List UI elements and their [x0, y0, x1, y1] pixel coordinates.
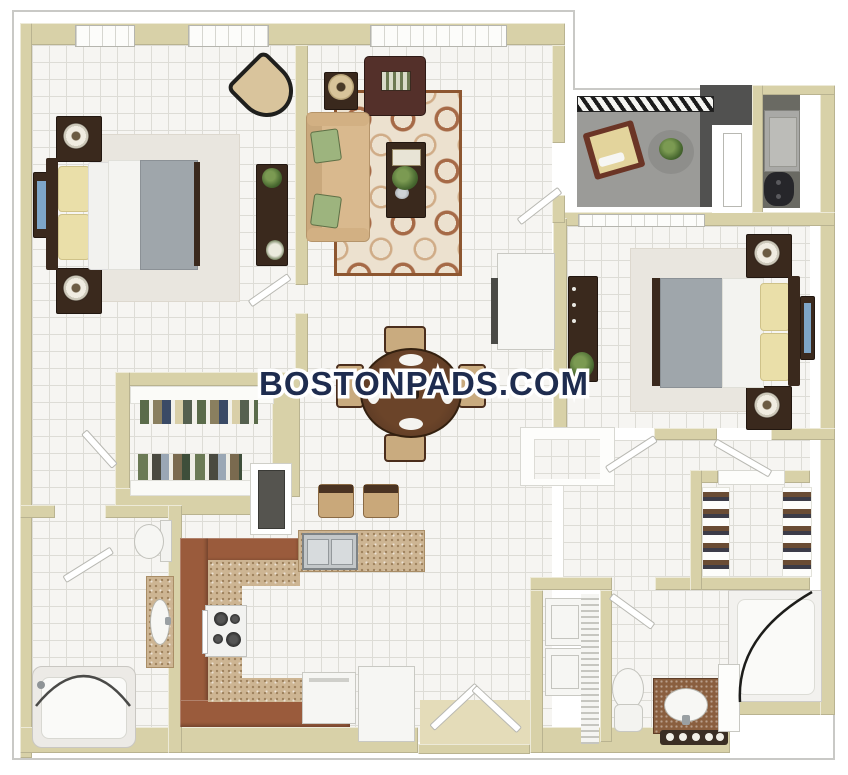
wall-shoecloset-left: [690, 470, 702, 590]
laundry-dryer: [545, 648, 583, 696]
bedroom2-pillow-1: [760, 283, 790, 331]
laundry-wire-shelves: [581, 594, 599, 744]
dresser-knob-1: [572, 287, 576, 291]
bath2-vanity: [653, 678, 719, 734]
bedroom2-window: [578, 214, 705, 227]
plate-e: [441, 383, 454, 404]
utility-dark-appliance: [764, 172, 794, 206]
wall-bedroom2-left: [553, 218, 567, 430]
bedroom1-pillow-1: [58, 166, 90, 212]
wall-right: [820, 88, 835, 715]
bedroom1-flowers: [266, 240, 284, 260]
bath2-faucet: [682, 715, 690, 725]
bedroom2-lamp-n: [752, 238, 782, 268]
bar-stool-2: [363, 484, 399, 518]
balcony-railing: [577, 96, 714, 112]
bedroom2-tv: [800, 296, 815, 360]
bath1-shower-head: [37, 681, 45, 689]
living-armchair: [364, 56, 426, 116]
sink-basin-right: [331, 539, 353, 565]
wall-bath1-top-b: [105, 505, 170, 518]
bath1-faucet: [165, 617, 171, 625]
kitchen-dishwasher: [302, 672, 356, 724]
washer-lid: [769, 117, 797, 167]
shoe-shelf-right: [782, 487, 812, 577]
bedroom2-plant: [570, 352, 594, 378]
plate-w: [367, 383, 380, 404]
utility-washer: [764, 110, 800, 172]
dining-chair-s: [384, 434, 426, 462]
sofa-arm-n: [307, 113, 369, 126]
wall-shoecloset-top-b: [783, 470, 810, 483]
bedroom1-pillow-2: [58, 214, 90, 260]
balcony-wall-right: [700, 125, 712, 207]
wall-bath1-top-a: [20, 505, 55, 518]
wall-hall-b: [654, 428, 717, 440]
bedroom2-pillow-2: [760, 333, 790, 381]
wall-bedroom1-right-b: [295, 313, 308, 372]
dining-console-edge: [491, 278, 498, 344]
bedroom2-sheet: [722, 278, 764, 388]
bath1-toilet-bowl: [134, 524, 164, 559]
wall-left: [20, 23, 32, 758]
balcony-side-door: [723, 133, 742, 207]
candle-4: [705, 733, 713, 741]
burner-3: [213, 634, 223, 644]
sofa-pillow-1: [310, 128, 342, 164]
burner-4: [226, 632, 241, 647]
bedroom1-lamp-n: [60, 120, 92, 152]
wall-bath2-top-b: [655, 577, 810, 590]
living-lamp: [328, 74, 354, 100]
sink-basin-left: [307, 539, 329, 565]
candle-5: [716, 733, 724, 741]
wall-bath2-top-a: [530, 577, 612, 590]
closet-door-frame: [250, 463, 292, 535]
plate-s: [399, 418, 423, 430]
wall-bottom-right: [728, 700, 835, 715]
coffee-table-plant: [392, 166, 418, 190]
hall-closet-floor: [534, 439, 600, 479]
bedroom1-lamp-s: [60, 272, 92, 304]
coffee-table-tray: [392, 149, 421, 166]
laundry-washer-door: [551, 605, 579, 639]
laundry-dryer-door: [551, 655, 579, 689]
closet-clothes-row-1: [140, 400, 258, 424]
dining-console: [497, 253, 555, 350]
bath2-frame: [718, 664, 740, 732]
burner-2: [230, 614, 240, 624]
dining-table: [360, 348, 462, 438]
laundry-washer: [545, 598, 583, 646]
burner-1: [214, 612, 228, 626]
bedroom2-footboard: [652, 278, 660, 386]
sofa-arm-s: [307, 228, 369, 241]
wall-bath2-left: [600, 590, 612, 742]
shoecloset-door-opening: [718, 470, 785, 485]
bedroom1-plant: [262, 168, 282, 188]
kitchen-fridge: [358, 666, 415, 742]
bedroom1-sheet: [108, 160, 144, 270]
candle-1: [666, 733, 674, 741]
wall-utility-top: [752, 85, 835, 95]
bath2-toilet-seat: [614, 704, 643, 732]
dresser-knob-3: [572, 319, 576, 323]
candle-3: [692, 733, 700, 741]
bath2-candle-tray: [660, 730, 728, 745]
bar-stool-1: [318, 484, 354, 518]
appliance-dot-1: [776, 180, 781, 185]
bar-stool-2-back: [364, 485, 398, 493]
bedroom2-tv-screen: [804, 303, 811, 353]
appliance-dot-2: [776, 194, 781, 199]
living-window: [370, 25, 507, 47]
dishwasher-handle: [309, 678, 349, 682]
closet-dark-door: [258, 470, 285, 529]
living-sofa: [306, 112, 370, 242]
bedroom1-window-2: [188, 25, 269, 47]
stove-handle: [202, 610, 208, 654]
bedroom1-footboard: [194, 162, 200, 266]
armchair-pillow: [381, 71, 411, 91]
floorplan-canvas: BOSTONPADS.COM BOSTONPADS.COM: [0, 0, 848, 775]
hall-closet: [520, 427, 615, 486]
sofa-pillow-2: [310, 193, 342, 229]
bedroom2-lamp-s: [752, 390, 782, 420]
bedroom1-duvet: [140, 160, 198, 270]
dining-chair-e: [458, 364, 486, 408]
dresser-knob-2: [572, 303, 576, 307]
bedroom1-window-1: [75, 25, 135, 47]
bath2-tub-basin: [737, 599, 815, 695]
kitchen-sink: [302, 533, 358, 570]
lounge-cushion: [590, 126, 639, 174]
dining-centerpiece: [403, 386, 419, 399]
bedroom2-headboard: [788, 276, 800, 386]
bath1-tub-basin: [41, 677, 127, 739]
bar-stool-1-back: [319, 485, 353, 493]
plate-n: [399, 354, 423, 366]
bedroom1-tv-screen: [37, 181, 46, 229]
bath2-tub: [728, 590, 822, 702]
candle-2: [679, 733, 687, 741]
kitchen-stove: [205, 605, 247, 657]
bedroom1-headboard: [46, 158, 58, 270]
balcony-plant: [659, 138, 683, 160]
wall-utility-left: [752, 85, 763, 213]
shoe-shelf-left: [702, 487, 730, 577]
wall-laundry-left: [530, 590, 543, 753]
closet-clothes-row-2: [138, 454, 242, 480]
wall-living-right-a: [552, 45, 565, 143]
wall-entry-recess: [418, 744, 530, 754]
bedroom2-duvet: [660, 278, 726, 388]
bath1-vanity: [146, 576, 174, 668]
bath1-tub: [32, 666, 136, 748]
